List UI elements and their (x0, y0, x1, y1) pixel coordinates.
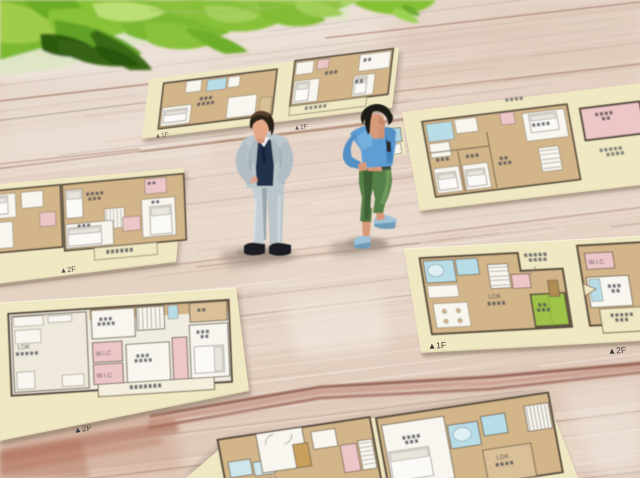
svg-text:▲2F: ▲2F (59, 264, 76, 275)
svg-text:W.I.C: W.I.C (588, 258, 605, 266)
svg-text:LDK: LDK (488, 293, 503, 301)
svg-text:W.I.C: W.I.C (97, 372, 113, 380)
svg-text:▲2F: ▲2F (607, 345, 626, 356)
svg-text:▲1F: ▲1F (427, 340, 446, 351)
svg-text:W.I.C: W.I.C (96, 350, 112, 358)
svg-text:LDK: LDK (18, 344, 32, 352)
